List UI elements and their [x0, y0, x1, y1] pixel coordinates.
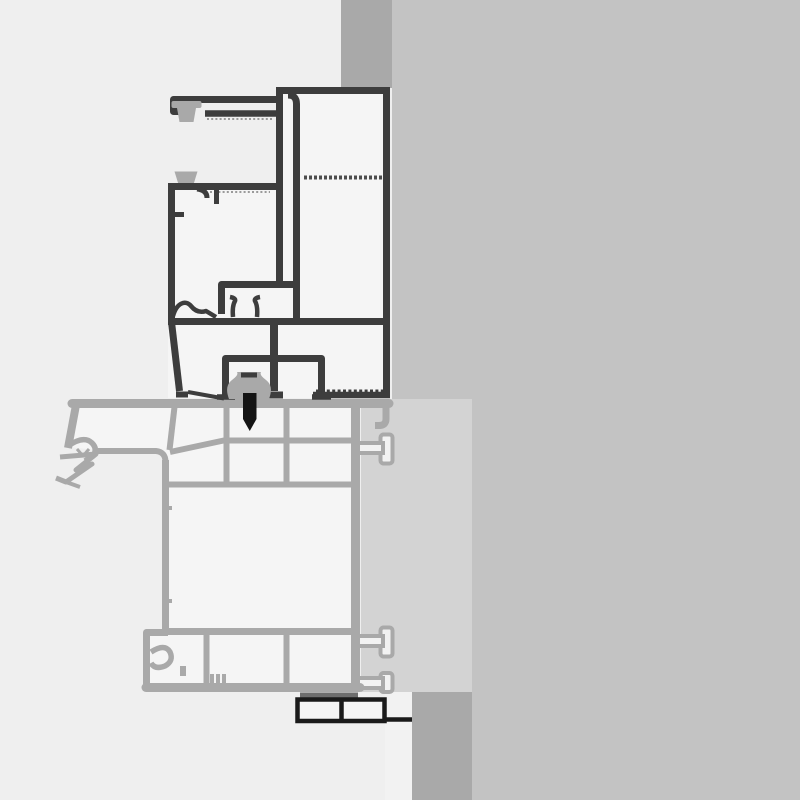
thin-spacer-bar: [300, 693, 358, 698]
white-strip-bottom: [385, 692, 412, 800]
clip-notch: [241, 373, 257, 378]
fixing-screw-head: [243, 393, 257, 400]
brush-gasket-top: [177, 108, 196, 122]
anchor-stem: [356, 636, 383, 646]
profile-section-diagram: Aluminium window frame profile on sill p…: [0, 0, 800, 800]
anchor-stem: [356, 443, 383, 453]
wall-band-top: [341, 0, 392, 88]
wall-band-bottom: [412, 692, 472, 800]
diagram-canvas: Aluminium window frame profile on sill p…: [0, 0, 800, 800]
comb-tooth: [222, 674, 226, 684]
brush-gasket-top-flange: [172, 101, 202, 108]
comb-tooth: [210, 674, 214, 684]
comb-tooth: [216, 674, 220, 684]
sill-foot-tooth: [180, 666, 186, 676]
